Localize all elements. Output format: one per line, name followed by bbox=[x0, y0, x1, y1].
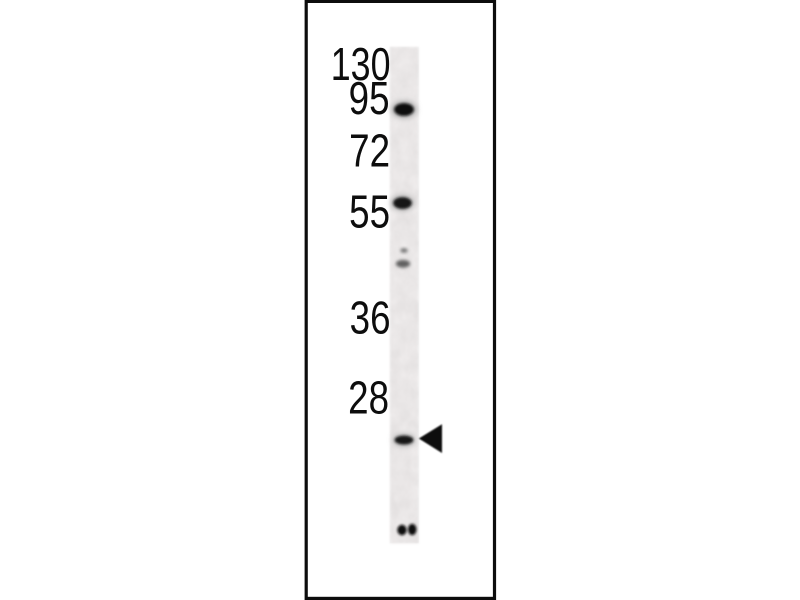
svg-text:72: 72 bbox=[349, 124, 390, 176]
svg-text:28: 28 bbox=[348, 371, 389, 423]
svg-text:95: 95 bbox=[349, 72, 390, 124]
svg-text:55: 55 bbox=[349, 185, 390, 237]
svg-text:36: 36 bbox=[350, 291, 391, 343]
